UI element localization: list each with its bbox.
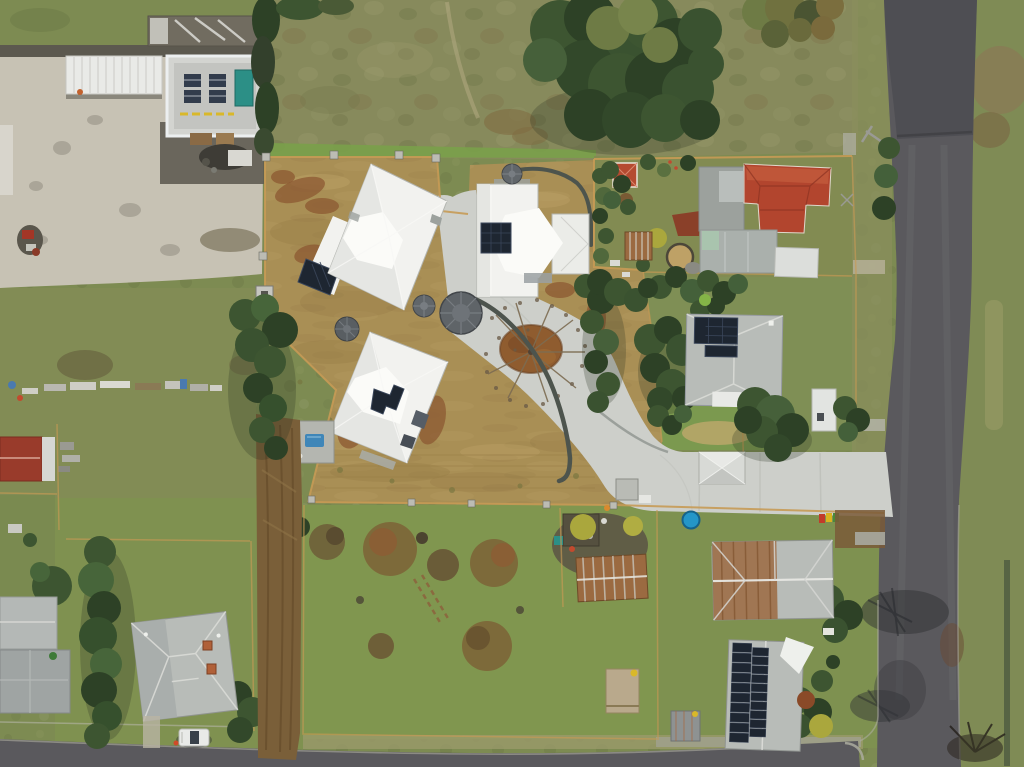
driveway-crossing	[853, 260, 885, 274]
garage-studio	[699, 452, 745, 484]
carport-canopy	[66, 56, 162, 99]
yellow-bush-1	[570, 514, 596, 540]
dirt-apron	[835, 510, 885, 548]
trampoline	[683, 512, 700, 529]
aerial-photo-canvas	[0, 0, 1024, 767]
chimney-2	[207, 664, 216, 674]
yellow-bush-2	[623, 516, 643, 536]
house-path	[143, 716, 160, 748]
tree-cluster-top	[523, 0, 724, 155]
white-object	[823, 628, 834, 635]
storage-shed	[148, 16, 265, 46]
chimney-1	[203, 641, 212, 650]
parked-ute	[174, 729, 213, 748]
warehouse-roof	[167, 56, 263, 136]
tank-small-2	[335, 317, 359, 341]
rusty-roof-house	[711, 540, 833, 620]
garden-shed-white	[812, 389, 836, 431]
concrete-pad	[616, 479, 638, 500]
aerial-photo	[0, 0, 1024, 767]
garden-shed-rust	[625, 232, 652, 260]
tank-large	[440, 292, 482, 334]
tree-cluster-west	[228, 294, 298, 460]
traffic-cone	[174, 741, 179, 746]
small-hut	[671, 711, 700, 741]
tank-small-1	[413, 295, 435, 317]
teal-container	[235, 70, 253, 106]
solar-panels-c	[481, 223, 511, 253]
tree-shadow	[861, 590, 949, 634]
dirt-track	[256, 414, 302, 760]
tan-garage	[606, 669, 639, 713]
hip-roof-house	[131, 612, 237, 722]
long-shed	[774, 247, 818, 277]
green-bin	[49, 652, 57, 660]
tank-small-3	[502, 164, 522, 184]
